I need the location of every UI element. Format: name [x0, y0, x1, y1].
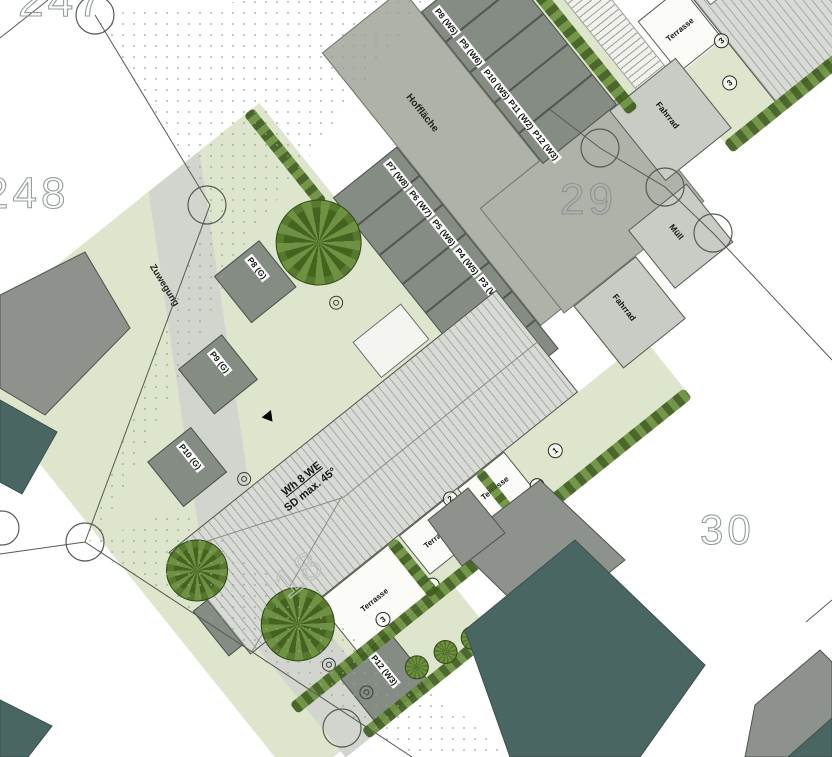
- boundary-line-west-spur: [0, 542, 85, 554]
- context-overlay: 247 248 29 30 18: [0, 0, 832, 757]
- survey-point-8: [0, 511, 19, 545]
- parcel-number-247: 247: [18, 0, 107, 26]
- parcel-number-30: 30: [700, 506, 755, 553]
- boundary-line-northeast: [548, 108, 832, 360]
- parcel-number-248: 248: [0, 169, 69, 218]
- neighbour-building-teal-southwest: [0, 700, 52, 757]
- gravel-band-west: [85, 0, 425, 542]
- boundary-line-bottomright: [806, 600, 832, 622]
- parcel-number-29: 29: [560, 175, 617, 224]
- neighbour-building-teal-west: [0, 400, 57, 494]
- survey-point-7: [323, 709, 361, 747]
- site-plan-canvas: Zuwegung Hoffläche P8 (W5) P9 (W6) P10 (…: [0, 0, 832, 757]
- neighbour-building-grey-west: [0, 252, 130, 415]
